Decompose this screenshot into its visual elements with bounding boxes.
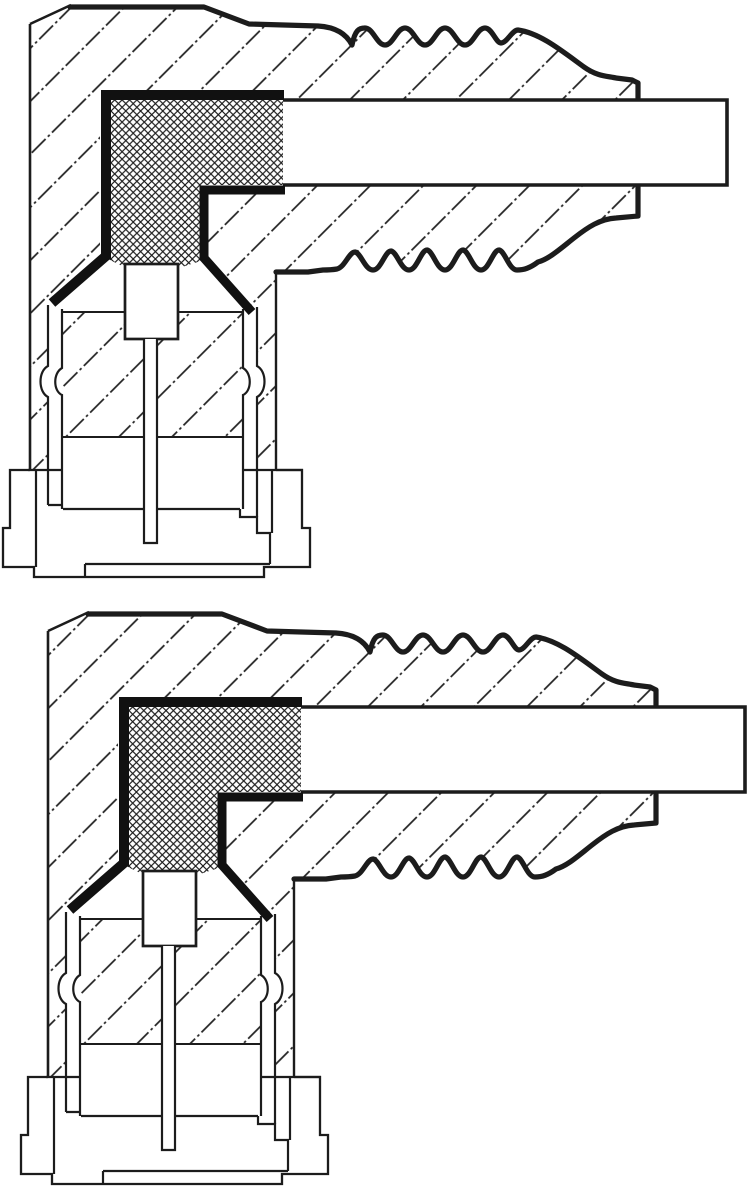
cross-section-diagram <box>0 0 750 1190</box>
diagram-canvas <box>0 0 750 1190</box>
figure-top <box>3 5 727 577</box>
figure-bottom <box>21 612 745 1184</box>
